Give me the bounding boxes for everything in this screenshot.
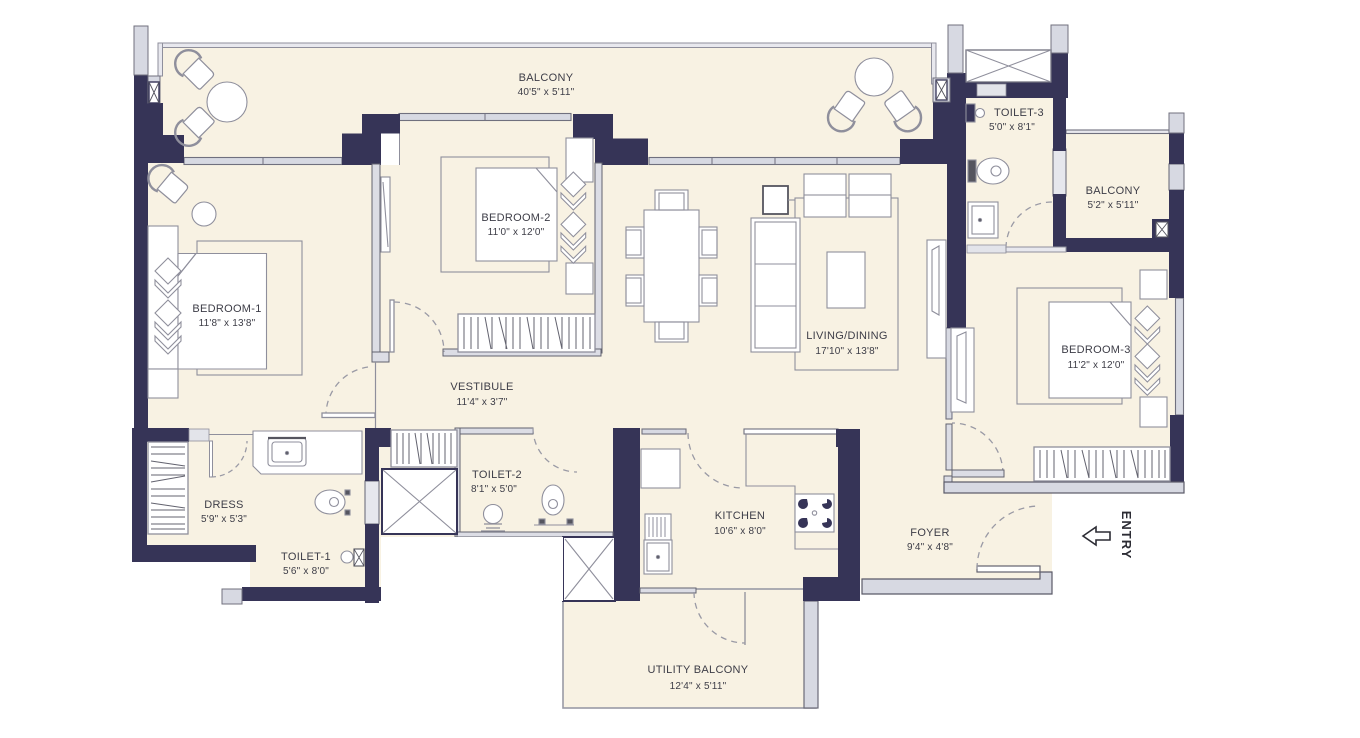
svg-text:5'6" x 8'0": 5'6" x 8'0" [283, 566, 329, 577]
svg-text:FOYER: FOYER [910, 527, 949, 539]
svg-text:8'1" x 5'0": 8'1" x 5'0" [471, 484, 517, 495]
svg-text:BEDROOM-2: BEDROOM-2 [481, 212, 550, 224]
svg-text:VESTIBULE: VESTIBULE [450, 381, 513, 393]
svg-text:11'4" x 3'7": 11'4" x 3'7" [457, 397, 508, 408]
svg-text:BALCONY: BALCONY [1086, 185, 1141, 197]
svg-text:TOILET-3: TOILET-3 [994, 107, 1044, 119]
svg-text:40'5" x 5'11": 40'5" x 5'11" [518, 87, 575, 98]
svg-text:BEDROOM-1: BEDROOM-1 [192, 303, 261, 315]
svg-text:KITCHEN: KITCHEN [715, 510, 765, 522]
svg-text:5'2" x 5'11": 5'2" x 5'11" [1088, 200, 1139, 211]
svg-text:DRESS: DRESS [204, 499, 243, 511]
svg-text:UTILITY BALCONY: UTILITY BALCONY [648, 664, 749, 676]
svg-text:17'10" x 13'8": 17'10" x 13'8" [815, 346, 878, 357]
svg-text:5'9" x 5'3": 5'9" x 5'3" [201, 514, 247, 525]
svg-text:TOILET-2: TOILET-2 [472, 469, 522, 481]
svg-text:LIVING/DINING: LIVING/DINING [806, 330, 888, 342]
svg-text:TOILET-1: TOILET-1 [281, 551, 331, 563]
svg-text:BALCONY: BALCONY [519, 72, 574, 84]
svg-text:9'4" x 4'8": 9'4" x 4'8" [907, 542, 953, 553]
svg-text:BEDROOM-3: BEDROOM-3 [1061, 344, 1130, 356]
svg-text:11'2" x 12'0": 11'2" x 12'0" [1068, 360, 1125, 371]
svg-text:10'6" x 8'0": 10'6" x 8'0" [714, 526, 766, 537]
svg-text:11'8" x 13'8": 11'8" x 13'8" [199, 318, 256, 329]
svg-text:12'4" x 5'11": 12'4" x 5'11" [670, 681, 727, 692]
svg-text:5'0" x 8'1": 5'0" x 8'1" [989, 122, 1035, 133]
svg-text:11'0" x 12'0": 11'0" x 12'0" [488, 227, 545, 238]
svg-text:ENTRY: ENTRY [1119, 511, 1134, 560]
